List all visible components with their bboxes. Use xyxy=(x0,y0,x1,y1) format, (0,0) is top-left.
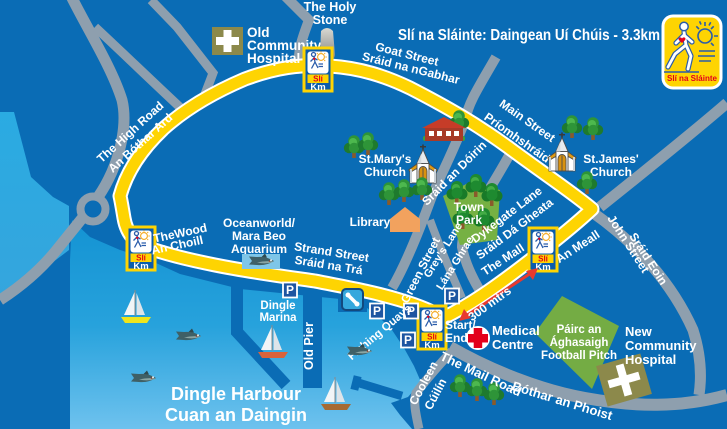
svg-text:Marina: Marina xyxy=(259,312,297,324)
svg-text:Slí na Sláinte: Slí na Sláinte xyxy=(667,73,717,83)
svg-text:Hospital: Hospital xyxy=(625,352,676,367)
svg-text:Dingle Harbour: Dingle Harbour xyxy=(171,384,301,404)
svg-text:The Holy: The Holy xyxy=(304,0,357,14)
svg-text:Library: Library xyxy=(350,215,391,229)
svg-text:Oceanworld/: Oceanworld/ xyxy=(223,216,296,230)
svg-text:Aquarium: Aquarium xyxy=(231,242,287,256)
svg-text:Church: Church xyxy=(590,165,632,179)
svg-text:Old Pier: Old Pier xyxy=(302,322,316,370)
svg-text:Dingle: Dingle xyxy=(260,300,295,312)
svg-text:Hospital: Hospital xyxy=(247,51,300,66)
svg-text:Football Pitch: Football Pitch xyxy=(541,350,617,362)
svg-text:Town: Town xyxy=(454,200,484,214)
svg-text:Centre: Centre xyxy=(492,337,533,352)
svg-text:Stone: Stone xyxy=(313,13,348,27)
svg-text:Slí na Sláinte: Daingean Uí Ch: Slí na Sláinte: Daingean Uí Chúis - 3.3k… xyxy=(398,27,660,44)
svg-text:New: New xyxy=(625,324,653,339)
svg-text:Ághasaigh: Ághasaigh xyxy=(550,336,609,349)
svg-text:Church: Church xyxy=(364,165,406,179)
svg-text:Community: Community xyxy=(625,338,697,353)
svg-text:Mara Beo: Mara Beo xyxy=(232,229,286,243)
svg-text:Medical: Medical xyxy=(492,323,540,338)
svg-text:End: End xyxy=(445,331,468,345)
svg-text:Páirc an: Páirc an xyxy=(557,324,602,336)
svg-text:Cuan an Daingin: Cuan an Daingin xyxy=(165,405,307,425)
svg-text:St.James': St.James' xyxy=(583,152,639,166)
